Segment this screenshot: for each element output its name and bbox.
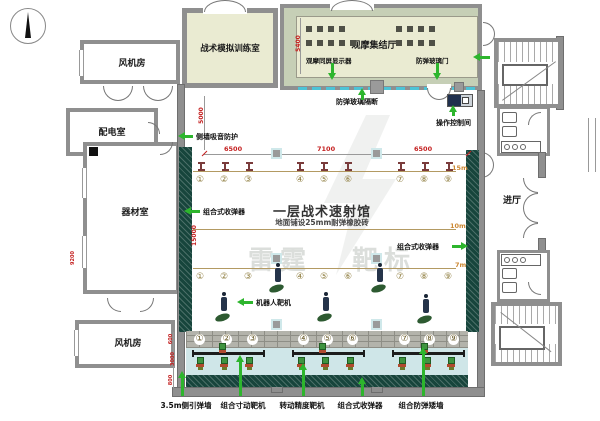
arrow-up-icon <box>239 358 242 396</box>
column-marker <box>89 147 98 156</box>
arrow-down-icon <box>331 63 334 77</box>
lane-number-plate: ① <box>194 334 205 345</box>
toilet-fixture-icon <box>502 126 517 137</box>
glass-partition-line <box>298 87 478 90</box>
toilet-fixture-icon <box>502 112 517 123</box>
door-swing <box>523 223 538 238</box>
door-swing <box>523 178 538 193</box>
lane-number: ⑨ <box>444 175 452 185</box>
label-control-room: 操作控制间 <box>436 118 471 128</box>
rail-target-icon <box>319 343 326 353</box>
label-collector-left: 组合式收弹器 <box>203 207 245 217</box>
label-sound-absorption: 侧墙吸音防护 <box>196 132 238 142</box>
lane-number-plate: ⑥ <box>347 334 358 345</box>
seat <box>396 26 402 32</box>
outer-wall <box>538 152 546 178</box>
room-label-fan-bottom: 风机房 <box>114 336 141 349</box>
arrow-left-icon <box>240 301 253 304</box>
arrow-left-icon <box>187 210 200 213</box>
floor-plan: 雷霆 靶标 风机房 配电室 器材室 风机房 9200 战术模拟训练室 观摩集结厅 <box>0 0 600 421</box>
toilet-fixture-icon <box>502 282 517 293</box>
target-icon <box>398 357 406 370</box>
room-label-entrance: 进厅 <box>503 193 521 206</box>
label-observation-display: 观摩同屏显示器 <box>306 55 352 65</box>
hall-subtitle: 地面铺设25mm耐弹橡胶砖 <box>275 217 369 228</box>
lane-number: ④ <box>296 175 304 185</box>
seat <box>418 40 424 46</box>
robot-target-figure <box>417 294 433 323</box>
toilet-fixture-icon <box>502 268 517 279</box>
rail-target-icon <box>219 343 226 353</box>
target-rail <box>392 352 465 355</box>
north-arrow-icon <box>10 8 46 44</box>
window <box>74 330 79 356</box>
arrow-up-icon <box>181 374 184 396</box>
lane-number: ③ <box>244 272 252 282</box>
stair-treads <box>498 42 558 62</box>
seat <box>418 26 424 32</box>
partition-post <box>370 80 384 94</box>
arrow-up-icon <box>422 350 425 396</box>
arrow-up-icon <box>361 91 364 100</box>
room-label-simulation: 战术模拟训练室 <box>200 42 260 54</box>
door-swing <box>148 122 160 134</box>
arrow-up-icon <box>302 366 305 396</box>
door-swing <box>158 86 173 101</box>
range-marker-7m: 7m <box>455 261 466 269</box>
staircase-top <box>494 38 562 108</box>
seat <box>429 40 435 46</box>
target-rail <box>192 352 265 355</box>
door-swing <box>523 193 538 208</box>
staircase-bottom <box>491 302 562 366</box>
label-glass-door: 防弹玻璃门 <box>416 55 449 65</box>
label-collector-right: 组合式收弹器 <box>397 242 439 252</box>
lane-number-plate: ③ <box>247 334 258 345</box>
bullet-trap-right <box>466 150 479 332</box>
seat <box>396 40 402 46</box>
arrow-up-icon <box>361 380 364 396</box>
label-glass-partition: 防弹玻璃隔断 <box>336 97 378 107</box>
arrow-left-icon <box>181 135 193 138</box>
target-stand-icon <box>345 162 352 171</box>
door-swing <box>103 86 118 101</box>
robot-target-figure <box>269 263 285 292</box>
label-low-wall: 组合防弹矮墙 <box>399 400 444 411</box>
lane-number: ④ <box>296 272 304 282</box>
seat <box>317 40 323 46</box>
target-icon <box>447 357 455 370</box>
arrow-up-icon <box>452 108 455 116</box>
label-inching-target: 组合寸动靶机 <box>221 400 266 411</box>
dim-span-3: 6500 <box>414 145 432 153</box>
target-stand-icon <box>398 162 405 171</box>
lane-number: ③ <box>244 175 252 185</box>
door-swing <box>143 86 158 101</box>
target-stand-icon <box>297 162 304 171</box>
range-marker-10m: 10m <box>450 222 466 230</box>
target-stand-icon <box>246 162 253 171</box>
lane-number: ⑦ <box>396 272 404 282</box>
door-swing <box>118 86 133 101</box>
robot-target-figure <box>317 292 333 321</box>
seat <box>328 26 334 32</box>
room-label-fan-top: 风机房 <box>118 56 145 69</box>
dim-line <box>204 154 470 155</box>
room-label-equipment: 器材室 <box>121 205 148 218</box>
lane-number: ⑧ <box>420 272 428 282</box>
door-swing <box>204 0 225 12</box>
equipment-box <box>454 82 464 92</box>
label-side-guide-wall: 3.5m侧引弹墙 <box>160 400 211 411</box>
seat <box>339 40 345 46</box>
target-icon <box>245 357 253 370</box>
door-swing <box>523 208 538 223</box>
seat <box>317 26 323 32</box>
door-swing <box>140 298 154 312</box>
arrow-left-icon <box>476 56 490 59</box>
door-swing <box>483 22 495 34</box>
room-equipment <box>83 142 180 294</box>
range-marker-15m: 15m <box>452 164 468 172</box>
label-collector-bottom: 组合式收弹器 <box>338 400 383 411</box>
exterior-steps <box>588 118 596 172</box>
dim-span-1: 6500 <box>224 145 242 153</box>
lane-number: ⑧ <box>420 175 428 185</box>
stair-treads <box>498 84 558 104</box>
lane-number-plate: ⑨ <box>448 334 459 345</box>
seat <box>306 40 312 46</box>
target-icon <box>196 357 204 370</box>
robot-target-figure <box>371 263 387 292</box>
door-swing <box>427 88 439 100</box>
lane-number: ⑥ <box>344 175 352 185</box>
seat <box>407 26 413 32</box>
window <box>82 168 87 198</box>
target-stand-icon <box>446 162 453 171</box>
dim-span-2: 7100 <box>317 145 335 153</box>
range-line-10m <box>193 229 456 230</box>
column <box>271 148 282 159</box>
target-icon <box>321 357 329 370</box>
door-swing <box>107 298 121 312</box>
column <box>271 319 282 330</box>
target-stand-icon <box>422 162 429 171</box>
window <box>79 50 84 76</box>
column <box>371 319 382 330</box>
seat <box>306 26 312 32</box>
target-stand-icon <box>222 162 229 171</box>
lane-number: ② <box>220 272 228 282</box>
window <box>82 236 87 268</box>
lane-number: ⑤ <box>320 272 328 282</box>
dim-left-wing: 9200 <box>70 251 76 265</box>
sink-counter-icon <box>501 254 541 266</box>
lane-number-plate: ⑦ <box>399 334 410 345</box>
seat <box>328 40 334 46</box>
label-rotating-target: 转动精度靶机 <box>280 400 325 411</box>
dim-small-2: 3000 <box>170 352 176 366</box>
seat <box>407 40 413 46</box>
dim-hall-upper-left: 5000 <box>198 107 205 124</box>
room-label-observation: 观摩集结厅 <box>351 38 396 51</box>
room-label-power: 配电室 <box>98 125 125 138</box>
lane-number: ⑨ <box>444 272 452 282</box>
sink-counter-icon <box>501 141 541 153</box>
dim-small-3: 800 <box>168 375 174 385</box>
target-stand-icon <box>198 162 205 171</box>
lane-number: ② <box>220 175 228 185</box>
lane-number-plate: ④ <box>298 334 309 345</box>
column <box>371 148 382 159</box>
robot-target-figure <box>215 292 231 321</box>
seat <box>429 26 435 32</box>
target-icon <box>220 357 228 370</box>
door-swing <box>225 0 246 12</box>
compass-needle-icon <box>25 12 31 38</box>
range-line-15m <box>193 171 456 172</box>
arrow-right-icon <box>452 245 465 248</box>
lane-number: ⑥ <box>344 272 352 282</box>
label-robot-target: 机器人靶机 <box>256 298 291 308</box>
hall-bottom-wall <box>172 387 485 397</box>
dim-observation-depth: 5400 <box>295 35 302 52</box>
seat <box>339 26 345 32</box>
lane-number: ① <box>196 175 204 185</box>
lane-number: ① <box>196 272 204 282</box>
arrow-down-icon <box>436 63 439 77</box>
target-rail <box>292 352 365 355</box>
range-line-7m <box>193 268 456 269</box>
dim-small-1: 600 <box>168 334 174 344</box>
target-icon <box>346 357 354 370</box>
bullet-trap-rear <box>186 375 468 387</box>
seat <box>350 40 356 46</box>
target-stand-icon <box>321 162 328 171</box>
lane-number: ⑦ <box>396 175 404 185</box>
lane-number: ⑤ <box>320 175 328 185</box>
